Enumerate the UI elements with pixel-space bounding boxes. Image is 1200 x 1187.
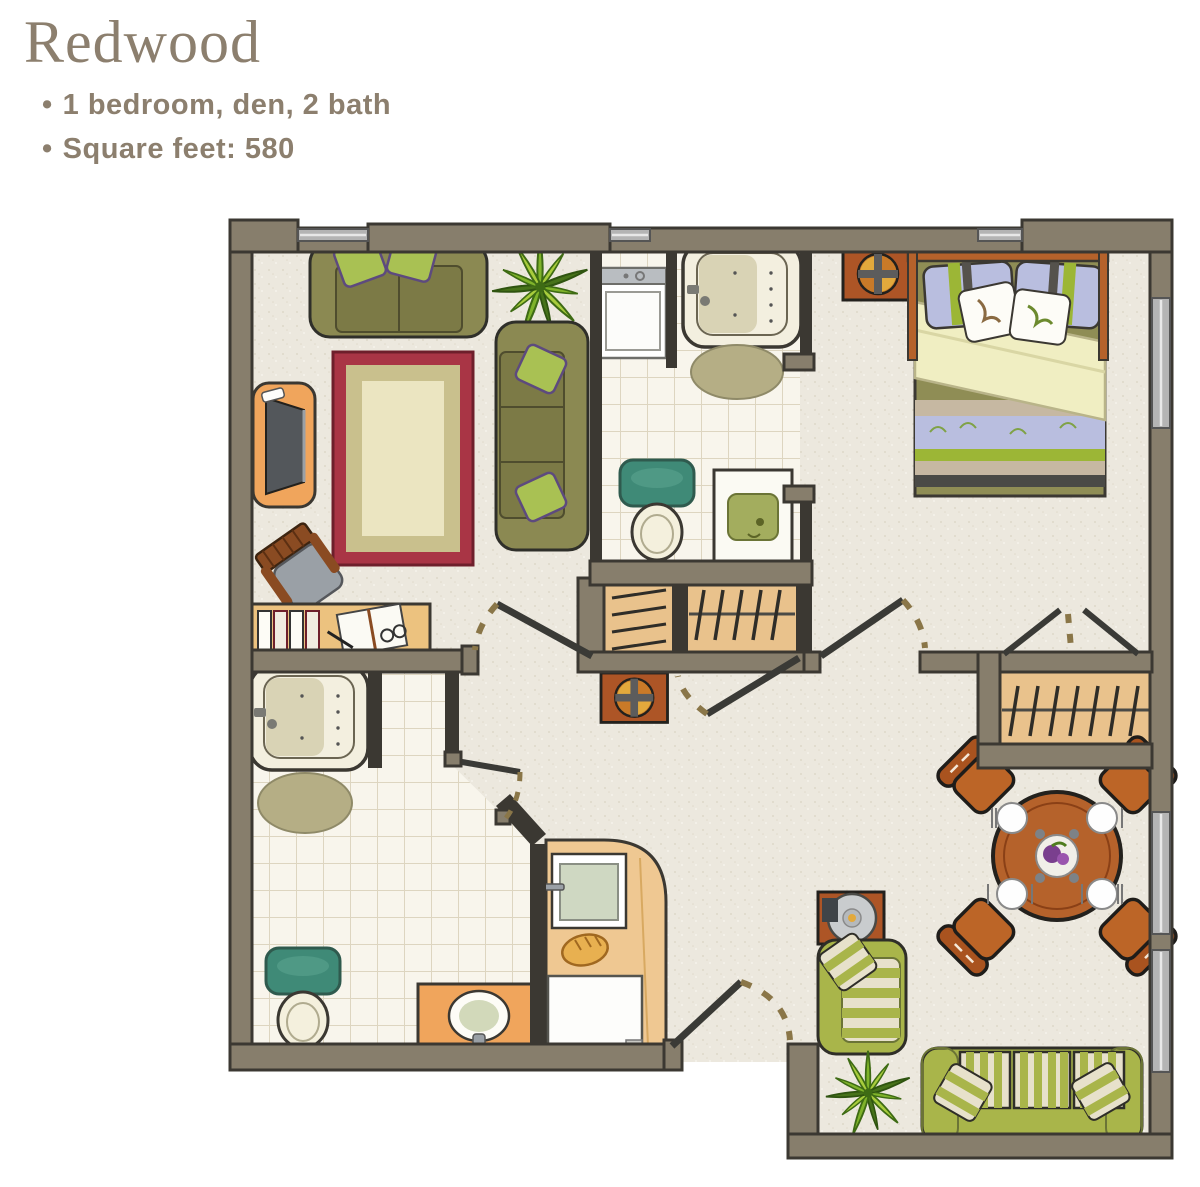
floor-plan-svg	[0, 0, 1200, 1187]
living-sofa	[922, 1048, 1142, 1142]
washer-icon	[600, 268, 666, 358]
bedroom-closet	[1000, 672, 1152, 744]
left-wall	[230, 228, 252, 1070]
armchair	[817, 931, 906, 1054]
area-rug	[333, 352, 473, 565]
den-bottom-wall	[252, 650, 478, 672]
window-top-1	[298, 229, 368, 241]
bathroom1-south-wall	[590, 561, 812, 585]
fridge-icon	[548, 976, 642, 1050]
bedroom-accent-table	[843, 248, 913, 300]
window-living-1	[1152, 812, 1170, 934]
kitchen-sink	[544, 854, 626, 928]
bath-mat-1	[691, 345, 783, 399]
window-living-2	[1152, 950, 1170, 1072]
hall-accent-table	[601, 673, 668, 722]
hall-closet-shelves	[604, 580, 673, 654]
dining-table	[988, 792, 1122, 920]
vanity-2	[418, 984, 540, 1052]
bottom-wall-left	[230, 1044, 682, 1070]
hall-wall	[578, 652, 804, 672]
bath-mat-2	[258, 773, 352, 833]
window-top-2	[610, 229, 650, 241]
bed	[908, 245, 1108, 496]
bedroom-south-wall	[920, 652, 1152, 672]
bathtub-1	[683, 243, 801, 347]
kitchen	[544, 840, 666, 1050]
den-sofa	[496, 322, 588, 550]
vanity-1	[714, 470, 792, 562]
tv-stand	[253, 383, 315, 507]
window-bedroom	[1152, 298, 1170, 428]
floorplan-page: Redwood •1 bedroom, den, 2 bath •Square …	[0, 0, 1200, 1187]
fruit-bowl-icon	[1036, 835, 1078, 877]
window-top-3	[978, 229, 1022, 241]
bottom-wall-right	[788, 1134, 1172, 1158]
hall-closet-rod	[687, 580, 797, 652]
bathtub-2	[250, 666, 368, 770]
